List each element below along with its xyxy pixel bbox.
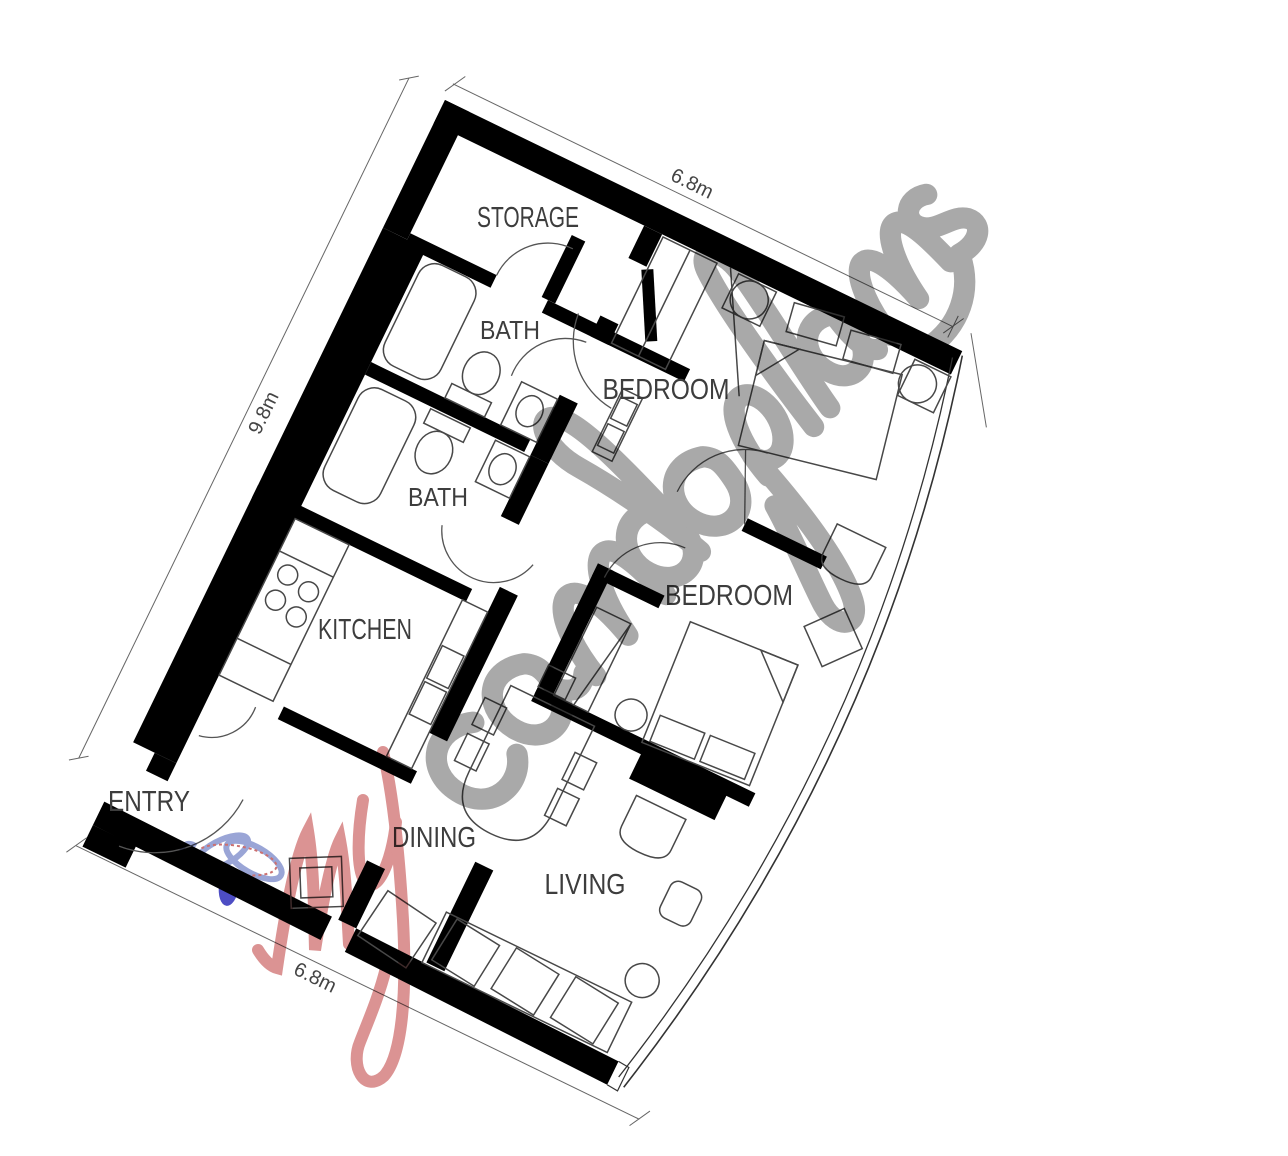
svg-text:BATH: BATH (480, 315, 540, 345)
svg-text:DINING: DINING (392, 822, 476, 854)
svg-text:LIVING: LIVING (545, 869, 626, 901)
svg-text:BATH: BATH (408, 482, 468, 512)
svg-text:KITCHEN: KITCHEN (318, 614, 412, 646)
svg-text:ENTRY: ENTRY (108, 786, 190, 818)
svg-text:STORAGE: STORAGE (477, 202, 579, 234)
svg-text:BEDROOM: BEDROOM (603, 374, 730, 406)
